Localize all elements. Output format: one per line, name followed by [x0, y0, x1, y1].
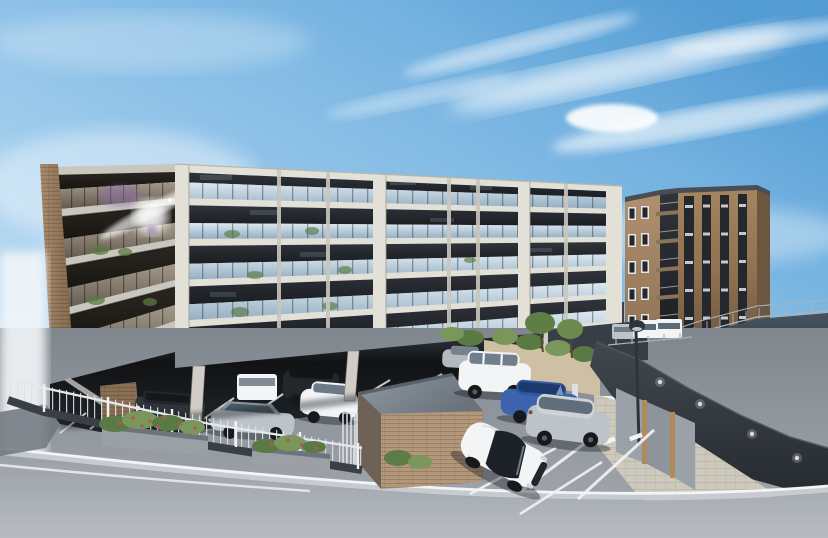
car-white-minivan	[237, 374, 277, 400]
architectural-rendering	[0, 0, 828, 538]
